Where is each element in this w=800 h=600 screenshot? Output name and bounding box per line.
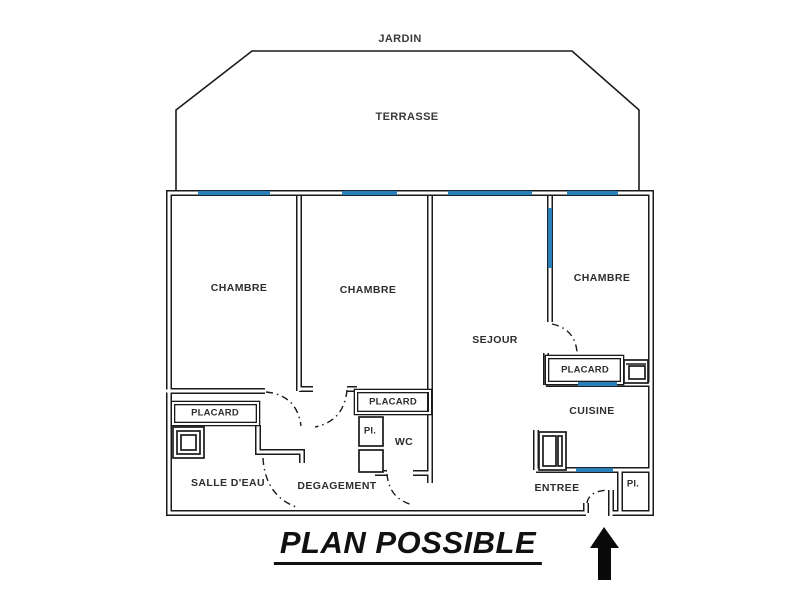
- label-degagement: DEGAGEMENT: [297, 480, 376, 492]
- door-arc-wc: [387, 474, 413, 505]
- label-pl-entree: Pl.: [627, 479, 639, 490]
- label-placard-chambre3: PLACARD: [561, 365, 609, 376]
- pl-lower-box: [359, 450, 383, 472]
- label-jardin: JARDIN: [378, 33, 421, 45]
- glazing-cuisine-entree: [576, 468, 613, 472]
- walls: [166, 193, 651, 516]
- floorplan-drawing: [0, 0, 800, 600]
- label-entree: ENTREE: [535, 482, 580, 494]
- sink-icon: [624, 360, 648, 383]
- label-wc: WC: [395, 436, 413, 448]
- window-sejour: [448, 191, 532, 195]
- floorplan-canvas: JARDIN TERRASSE CHAMBRE CHAMBRE SEJOUR C…: [0, 0, 800, 600]
- label-terrasse: TERRASSE: [375, 111, 438, 123]
- door-arc-entree: [587, 490, 608, 503]
- door-arc-chambre1: [266, 392, 301, 426]
- window-chambre1: [198, 191, 270, 195]
- label-chambre-2: CHAMBRE: [340, 284, 396, 296]
- door-arc-chambre2: [315, 390, 347, 427]
- door-arc-salle-deau: [263, 458, 296, 507]
- label-pl-degagement: Pl.: [364, 426, 376, 437]
- label-cuisine: CUISINE: [569, 405, 614, 417]
- fridge-icon: [539, 432, 566, 470]
- label-placard-salle-deau: PLACARD: [191, 408, 239, 419]
- label-chambre-1: CHAMBRE: [211, 282, 267, 294]
- window-chambre3: [567, 191, 618, 195]
- label-placard-degagement: PLACARD: [369, 397, 417, 408]
- label-chambre-3: CHAMBRE: [574, 272, 630, 284]
- door-arc-chambre3: [552, 324, 577, 352]
- glazing-sejour-chambre3: [548, 208, 552, 268]
- label-sejour: SEJOUR: [472, 334, 518, 346]
- plan-title: PLAN POSSIBLE: [274, 525, 542, 565]
- shower-icon: [173, 427, 204, 458]
- glazing-placard-cuisine: [578, 382, 617, 386]
- window-chambre2: [342, 191, 397, 195]
- label-salle-deau: SALLE D'EAU: [191, 477, 265, 489]
- entrance-arrow-icon: [590, 527, 619, 580]
